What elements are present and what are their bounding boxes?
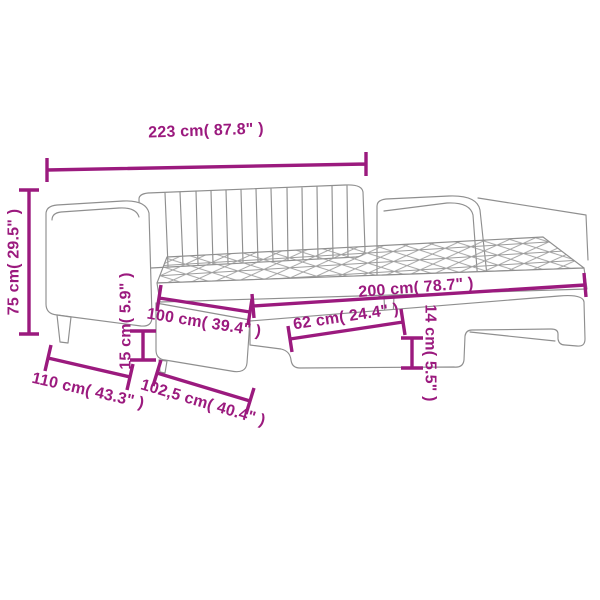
dimension-line [47, 152, 366, 182]
dimension-overall-length: 223 cm( 87.8" ) [47, 120, 366, 182]
dimension-label-overall-length: 223 cm( 87.8" ) [148, 120, 264, 141]
daybed-dimension-diagram: 223 cm( 87.8" ) 75 cm( 29.5" ) 100 cm( 3… [0, 0, 600, 600]
trundle-notch-inner-edge [470, 332, 555, 341]
dimension-trundle-width: 102,5 cm( 40.4" ) [139, 360, 268, 430]
left-armrest-leg [57, 315, 71, 343]
diagram-canvas: 223 cm( 87.8" ) 75 cm( 29.5" ) 100 cm( 3… [0, 0, 600, 600]
dimension-overall-height: 75 cm( 29.5" ) [6, 190, 40, 334]
dimension-label-floor-clearance-left: 15 cm( 5.9" ) [118, 272, 135, 369]
dimension-label-overall-height: 75 cm( 29.5" ) [6, 209, 23, 315]
dimension-label-floor-clearance-right: 14 cm( 5.5" ) [422, 304, 439, 401]
left-armrest [46, 201, 152, 326]
